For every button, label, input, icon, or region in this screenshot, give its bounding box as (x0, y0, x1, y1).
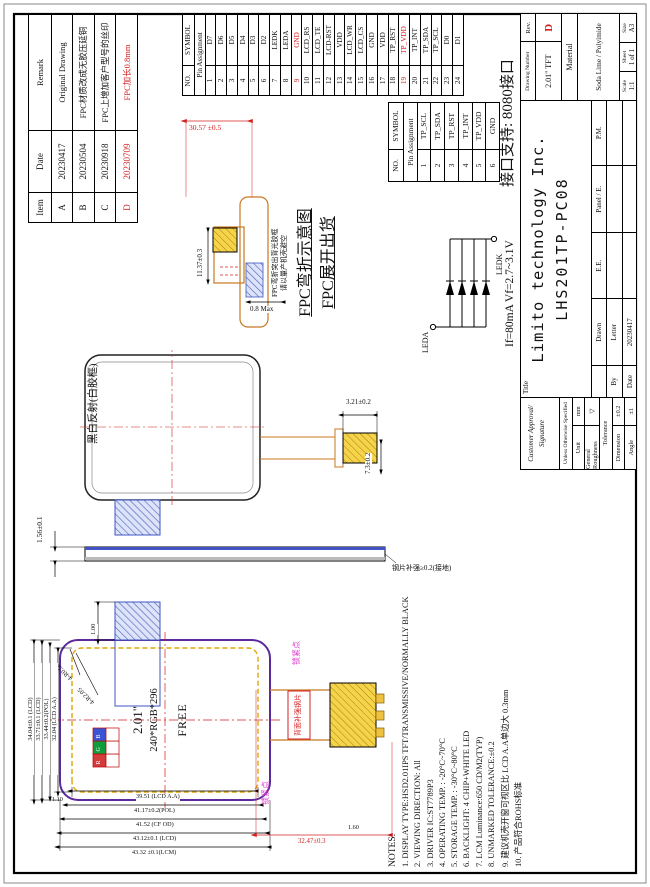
fpc-dim-width: 30.57 ±0.5 (189, 124, 221, 132)
company-cell: Title Limito technology Inc. LHS201TP-PC… (521, 100, 637, 397)
revision-row: D 20230709 FPC加长0.8mm (115, 15, 137, 222)
revision-table: Item Date Remark A 20230417 Original Dra… (28, 14, 138, 223)
revision-row: A 20230417 Original Drawing (51, 15, 73, 222)
note-line: 10. 产品符合ROHS标准 (512, 527, 524, 867)
scale-value: 1:1 (628, 82, 636, 91)
pin-row: 2 D6 (215, 15, 226, 95)
pin-row: 17 VDD (377, 15, 388, 95)
note-line: 2. VIEWING DIRECTION: All (413, 527, 425, 867)
approval-corner-cell (592, 366, 606, 397)
rev-header-remark: Remark (29, 15, 51, 130)
pin-table-6: NO. SYMBOL Pin Assignment 1 TP_SCL 2 TP_… (388, 102, 500, 182)
ee-date-value (622, 233, 637, 299)
roughness-symbol-icon: ▽ (585, 397, 599, 425)
lock-point-label-1: 锁紧点 (262, 781, 270, 805)
revision-row: B 20230504 FPC材质改成无胶压延铜 (72, 15, 94, 222)
bw-view (80, 350, 381, 535)
pin-row: 5 TP_VDD (472, 103, 486, 181)
rev-header-date: Date (29, 130, 51, 192)
bw-dim-tail-length: 7.3±0.2 (365, 453, 372, 474)
panel-header: Panel / E. (592, 167, 606, 233)
pin-row: 16 GND (366, 15, 377, 95)
pin-row: 8 LEDA (280, 15, 291, 95)
pin-row: 20 TP_INT (409, 15, 420, 95)
front-dim-110: 1.10 (52, 797, 63, 804)
side-note-steel: 钢片补强≥0.2(接地) (392, 565, 451, 572)
dimension-tol-value: ±0.2 (613, 397, 625, 425)
front-dim-tab: 1.00 (91, 624, 98, 635)
interface-support-note: 接口支持: 8080接口 (501, 59, 517, 187)
pin-row: 13 VDD (334, 15, 345, 95)
fpc-dim-thickness: 0.8 Max (250, 306, 273, 313)
title-label: Title (523, 381, 530, 394)
roughness-label: General Roughness (585, 425, 599, 469)
pin-row: 3 TP_RST (444, 103, 458, 181)
material-label: Material (561, 14, 577, 100)
pin-row: 12 LCD-RST (323, 15, 334, 95)
pin-row: 9 GND (291, 15, 302, 95)
drawing-number-label: Drawing Number (521, 41, 535, 100)
front-dim-left-4: 43.12±0.1 (LCD) (133, 836, 176, 843)
side-dim-thickness: 1.56±0.1 (36, 516, 44, 543)
drawn-by-value: Letter (606, 300, 621, 366)
pin-row: 24 D1 (452, 15, 463, 95)
size-value: A3 (628, 24, 636, 33)
pin-row: 1 D7 (205, 15, 216, 95)
model-number: LHS201TP-PC08 (553, 101, 571, 397)
bw-dim-tail-width: 3.21±0.2 (346, 399, 371, 406)
pin-row: 6 GND (485, 103, 499, 181)
leda-label: LEDA (422, 332, 430, 353)
pin-row: 21 TP_SDA (420, 15, 431, 95)
pin24-header-no: NO. (183, 65, 194, 95)
tolerance-label: Tolerance (600, 397, 612, 469)
ee-by-value (606, 233, 621, 299)
unit-label: Unit (573, 425, 585, 469)
rev-value: D (536, 14, 561, 41)
pin6-subheader: Pin Assignment (403, 103, 417, 181)
fpc-stiffener-label: 背面补强钢片 (295, 691, 302, 739)
notes-title: NOTES: (388, 527, 398, 867)
pin-row: 4 TP_INT (458, 103, 472, 181)
front-dim-top-1: 34.04±0.1 (LCD) (28, 663, 35, 775)
signature-label: Signature (537, 398, 548, 469)
note-line: 9. 建议机壳开窗可视区比 LCD A.A单边大 0.3mm (499, 527, 511, 867)
spec-header: Unless Otherwise Specified (560, 397, 572, 469)
front-dim-top-4: 32.04 (LCD A.A) (52, 663, 59, 775)
company-name: Limito technology Inc. (529, 101, 547, 397)
rgb-cell-b: B (96, 731, 102, 739)
front-dim-left-2: 41.17±0.2(POL) (134, 808, 175, 815)
pin-row: 7 LEDK (269, 15, 280, 95)
panel-by-value (606, 167, 621, 233)
ee-header: E.E. (592, 233, 606, 299)
pin6-header-no: NO. (389, 149, 403, 181)
fpc-bend-title: FPC弯折示意图 (298, 195, 315, 330)
front-dim-red-overall: 32.47±0.3 (298, 838, 326, 845)
front-view (30, 602, 392, 851)
led-circuit (430, 236, 496, 329)
pin-table-24: NO. SYMBOL Pin Assignment 1 D7 2 D6 3 D5… (182, 14, 464, 96)
front-dim-top-3: 33.44±0.2(POL) (44, 663, 51, 775)
fpc-note-line1: FPC弯折突出背光胶框 (272, 229, 279, 297)
pin-row: 14 LCD_WR (344, 15, 355, 95)
rev-label: Rev. (521, 14, 535, 41)
pin-row: 23 D0 (441, 15, 452, 95)
date-label: Date (622, 366, 637, 397)
note-line: 1. DISPLAY TYPE:HSD2.01IPS TFT/TRANSMISS… (401, 527, 413, 867)
note-line: 6. BACKLIGHT: 4 CHIP+WHITE LED (462, 527, 474, 867)
pin-row: 1 TP_SCL (417, 103, 431, 181)
pin-row: 3 D5 (226, 15, 237, 95)
pin24-header-symbol: SYMBOL (183, 15, 194, 65)
material-value: Soda Lime / Polyimide (577, 14, 619, 100)
drawing-info-cell: Drawing Number Rev. 2.01" TFT D Material… (521, 13, 637, 100)
angle-tol-value: ±1 (625, 397, 637, 425)
pin-row: 6 D2 (258, 15, 269, 95)
drawn-date-value: 20230417 (622, 300, 637, 366)
front-dim-left-3: 41.52 (CF OD) (136, 822, 174, 829)
pin-row: 19 TP_VDD (398, 15, 409, 95)
lock-point-label-2: 锁紧点 (293, 641, 301, 665)
note-line: 3. DRIVER IC:ST7789P3 (426, 527, 438, 867)
pin-row: 5 D3 (248, 15, 259, 95)
pin-row: 10 LCD_RS (301, 15, 312, 95)
unit-value: mm (573, 397, 585, 425)
side-view (50, 531, 396, 577)
fpc-dim-height: 11.37±0.3 (197, 249, 204, 277)
rgb-cell-r: R (96, 757, 102, 765)
front-dim-left-5: 43.32 ±0.1(LCM) (132, 850, 176, 857)
notes-block: NOTES: 1. DISPLAY TYPE:HSD2.01IPS TFT/TR… (388, 527, 524, 867)
front-dim-top-2: 33.71±0.1 (LCD) (36, 663, 43, 775)
fpc-unfold-title: FPC展开出货 (321, 195, 338, 330)
rev-header-item: Item (29, 192, 51, 222)
note-line: 8. UNMARKED TOLERANCE:±0.2 (487, 527, 499, 867)
note-line: 5. STORAGE TEMP. : -30°C~80°C (450, 527, 462, 867)
notes-list: 1. DISPLAY TYPE:HSD2.01IPS TFT/TRANSMISS… (401, 527, 524, 867)
dimension-tol-label: Dimension (613, 425, 625, 469)
bw-view-label: 黑白反射(白胶框) (88, 364, 99, 445)
pm-date-value (622, 100, 637, 166)
fpc-note-line2: 请以量产机壳避空 (281, 235, 288, 291)
pin-row: 11 LCD_TE (312, 15, 323, 95)
pin-row: 2 TP_SDA (430, 103, 444, 181)
pin24-subheader: Pin Assignment (194, 15, 205, 95)
panel-date-value (622, 167, 637, 233)
pin-row: 22 TP_SCL (431, 15, 442, 95)
note-line: 4. OPERATING TEMP. : -20°C~70°C (438, 527, 450, 867)
drawing-sheet: Item Date Remark A 20230417 Original Dra… (0, 0, 650, 887)
datasheet-page: Item Date Remark A 20230417 Original Dra… (0, 0, 650, 887)
approval-grid: By Date Drawn Letter 20230417 E.E. Panel… (591, 100, 637, 397)
pm-header: P.M. (592, 100, 606, 166)
customer-approval-label: Customer Approval/ (526, 398, 537, 469)
led-spec-text: If=80mA Vf=2.7~3.1V (504, 240, 516, 347)
revision-row: C 20230918 FPC上增加客户型号的丝印 (94, 15, 116, 222)
drawn-header: Drawn (592, 300, 606, 366)
rgb-cell-g: G (96, 744, 102, 752)
customer-approval-cell: Customer Approval/ Signature Unless Othe… (521, 397, 637, 469)
front-free-label: FREE (176, 697, 189, 743)
pm-by-value (606, 100, 621, 166)
front-dim-160: 1.60 (348, 825, 359, 832)
pin-row: 4 D4 (237, 15, 248, 95)
pin-row: 18 TP_RST (388, 15, 399, 95)
drawing-number-value: 2.01" TFT (536, 41, 561, 100)
spec-table: Unless Otherwise Specified Unit mm Gener… (559, 397, 637, 469)
pin-row: 15 LCD_CS (355, 15, 366, 95)
front-size-label: 2.01" (131, 693, 145, 747)
pin6-header-symbol: SYMBOL (389, 103, 403, 149)
front-dim-left-1: 39.51 (LCD A.A) (136, 794, 180, 801)
sheet-value: 1 of 1 (628, 49, 636, 65)
title-block: Customer Approval/ Signature Unless Othe… (520, 14, 636, 470)
front-resolution: 240*RGB*296 (149, 680, 160, 760)
note-line: 7. LCM Luminance:650 CD/M2(TYP) (475, 527, 487, 867)
by-label: By (606, 366, 621, 397)
angle-tol-label: Angle (625, 425, 637, 469)
